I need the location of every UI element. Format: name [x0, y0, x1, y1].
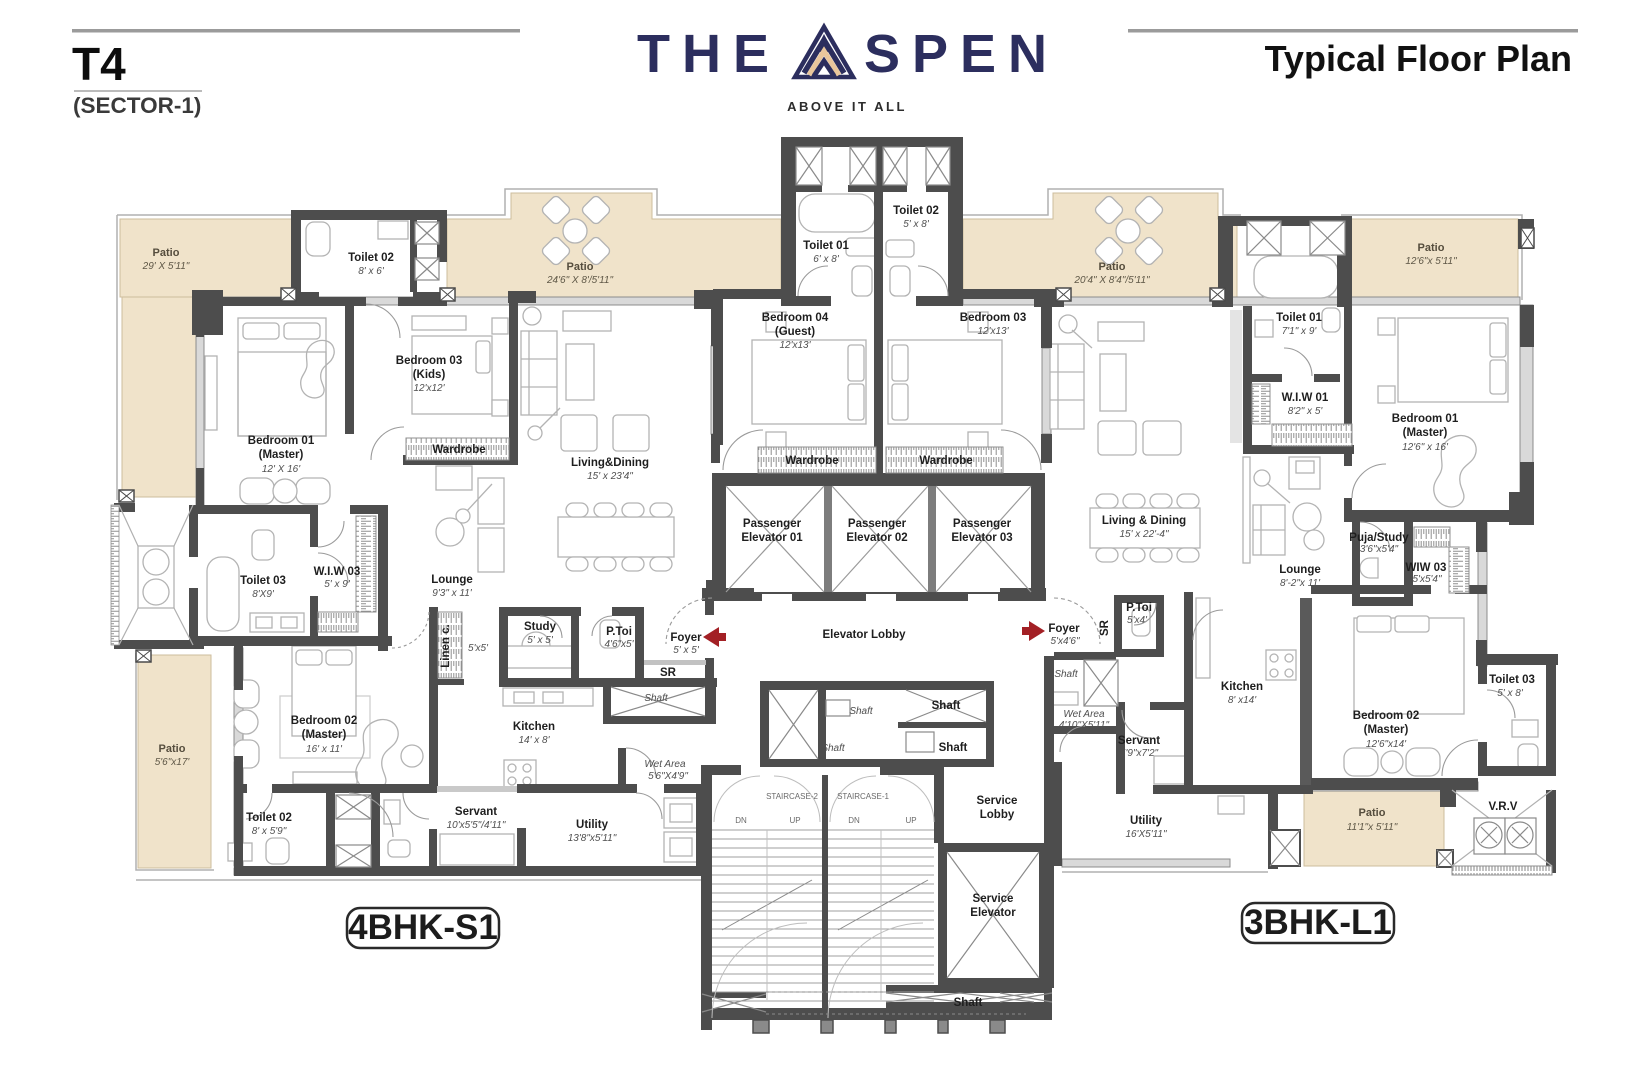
- svg-text:Linen c.: Linen c.: [440, 624, 452, 667]
- svg-text:Wardrobe: Wardrobe: [919, 455, 972, 467]
- svg-text:Shaft: Shaft: [821, 743, 846, 754]
- svg-text:4'10"X5'11": 4'10"X5'11": [1059, 720, 1110, 731]
- svg-text:SR: SR: [1099, 619, 1111, 636]
- svg-text:Toilet 03: Toilet 03: [240, 575, 286, 587]
- svg-text:Wet Area: Wet Area: [644, 759, 686, 770]
- svg-text:12'6"x14': 12'6"x14': [1366, 739, 1407, 750]
- svg-text:9'3" x 11': 9'3" x 11': [432, 588, 473, 599]
- svg-text:Shaft: Shaft: [849, 706, 874, 717]
- svg-text:(Master): (Master): [302, 729, 347, 741]
- svg-text:Patio: Patio: [1099, 261, 1126, 273]
- svg-text:Servant: Servant: [1118, 735, 1160, 747]
- svg-text:10'x5'5"/4'11": 10'x5'5"/4'11": [447, 820, 506, 831]
- svg-text:Foyer: Foyer: [670, 632, 702, 644]
- svg-text:12'x13': 12'x13': [779, 340, 811, 351]
- svg-text:WIW 03: WIW 03: [1406, 562, 1447, 574]
- svg-text:5'x4': 5'x4': [1127, 615, 1148, 626]
- svg-text:15' x 23'4": 15' x 23'4": [587, 471, 633, 482]
- svg-text:Living & Dining: Living & Dining: [1102, 515, 1186, 527]
- svg-text:8' x 5'9": 8' x 5'9": [252, 826, 287, 837]
- svg-text:5' x 5': 5' x 5': [673, 645, 700, 656]
- svg-text:UP: UP: [905, 816, 916, 825]
- svg-text:14' x 8': 14' x 8': [518, 735, 550, 746]
- svg-text:24'6" X 8'/5'11": 24'6" X 8'/5'11": [546, 275, 613, 286]
- svg-text:(Master): (Master): [1364, 724, 1409, 736]
- svg-text:Typical Floor Plan: Typical Floor Plan: [1265, 38, 1572, 79]
- svg-text:Passenger: Passenger: [848, 518, 907, 530]
- svg-text:12'x12': 12'x12': [413, 383, 445, 394]
- svg-text:SPEN: SPEN: [864, 24, 1059, 84]
- svg-text:Servant: Servant: [455, 806, 497, 818]
- svg-text:Elevator Lobby: Elevator Lobby: [822, 629, 906, 641]
- svg-text:Bedroom 03: Bedroom 03: [396, 355, 462, 367]
- svg-text:5'x5': 5'x5': [468, 643, 489, 654]
- svg-text:Toilet 02: Toilet 02: [246, 812, 292, 824]
- svg-text:Living&Dining: Living&Dining: [571, 457, 649, 469]
- svg-text:5' x 5': 5' x 5': [527, 635, 554, 646]
- svg-text:V.R.V: V.R.V: [1489, 801, 1518, 813]
- svg-text:12' X 16': 12' X 16': [262, 464, 301, 475]
- svg-text:(Master): (Master): [1403, 427, 1448, 439]
- svg-text:Patio: Patio: [153, 247, 180, 259]
- svg-text:5' x 8': 5' x 8': [1497, 688, 1524, 699]
- svg-text:Wet Area: Wet Area: [1063, 709, 1105, 720]
- svg-text:Shaft: Shaft: [644, 693, 669, 704]
- svg-text:Patio: Patio: [159, 743, 186, 755]
- svg-text:Toilet 01: Toilet 01: [803, 240, 849, 252]
- svg-text:12'6" x 16': 12'6" x 16': [1402, 442, 1449, 453]
- svg-text:29' X 5'11": 29' X 5'11": [142, 261, 190, 272]
- svg-text:16' x 11': 16' x 11': [306, 744, 343, 755]
- svg-text:12'x13': 12'x13': [977, 326, 1009, 337]
- svg-text:5' x 9': 5' x 9': [324, 579, 351, 590]
- svg-text:Passenger: Passenger: [743, 518, 802, 530]
- svg-text:Wardrobe: Wardrobe: [785, 455, 838, 467]
- svg-text:Patio: Patio: [567, 261, 594, 273]
- svg-text:Bedroom 01: Bedroom 01: [1392, 413, 1459, 425]
- svg-text:Study: Study: [524, 621, 557, 633]
- svg-text:Puja/Study: Puja/Study: [1349, 532, 1409, 544]
- svg-text:5' x 8': 5' x 8': [903, 219, 930, 230]
- svg-text:Service: Service: [973, 893, 1014, 905]
- svg-text:13'8"x5'11": 13'8"x5'11": [568, 833, 617, 844]
- svg-text:5'6"x17': 5'6"x17': [155, 757, 191, 768]
- svg-text:Utility: Utility: [1130, 815, 1163, 827]
- svg-text:(Guest): (Guest): [775, 326, 815, 338]
- svg-text:T4: T4: [72, 38, 126, 90]
- svg-text:20'4" X 8'4"/5'11": 20'4" X 8'4"/5'11": [1073, 275, 1150, 286]
- svg-text:W.I.W 03: W.I.W 03: [314, 566, 361, 578]
- svg-text:11'1"x 5'11": 11'1"x 5'11": [1347, 822, 1398, 833]
- svg-text:3BHK-L1: 3BHK-L1: [1244, 903, 1392, 942]
- svg-text:Elevator 02: Elevator 02: [846, 532, 907, 544]
- svg-text:DN: DN: [735, 816, 747, 825]
- svg-text:4BHK-S1: 4BHK-S1: [348, 908, 498, 947]
- svg-text:5'6"X4'9": 5'6"X4'9": [648, 771, 688, 782]
- svg-text:Lounge: Lounge: [1279, 564, 1321, 576]
- svg-text:Shaft: Shaft: [939, 742, 968, 754]
- svg-text:Lobby: Lobby: [980, 809, 1015, 821]
- svg-text:Bedroom 01: Bedroom 01: [248, 435, 315, 447]
- svg-text:(Master): (Master): [259, 449, 304, 461]
- svg-text:Shaft: Shaft: [1054, 669, 1079, 680]
- svg-text:Toilet 03: Toilet 03: [1489, 674, 1535, 686]
- svg-text:SR: SR: [660, 667, 677, 679]
- svg-text:Bedroom 04: Bedroom 04: [762, 312, 829, 324]
- svg-text:Elevator: Elevator: [970, 907, 1016, 919]
- svg-text:Patio: Patio: [1418, 242, 1445, 254]
- svg-text:7'1" x 9': 7'1" x 9': [1282, 326, 1318, 337]
- svg-text:15' x 22'-4": 15' x 22'-4": [1119, 529, 1169, 540]
- svg-text:8'2" x 5': 8'2" x 5': [1288, 406, 1324, 417]
- svg-text:Shaft: Shaft: [954, 997, 983, 1009]
- svg-text:UP: UP: [789, 816, 800, 825]
- svg-text:16'X5'11": 16'X5'11": [1125, 829, 1167, 840]
- svg-text:Utility: Utility: [576, 819, 609, 831]
- svg-text:Toilet 01: Toilet 01: [1276, 312, 1322, 324]
- svg-text:Toilet 02: Toilet 02: [348, 252, 394, 264]
- svg-text:STAIRCASE-2: STAIRCASE-2: [766, 792, 818, 801]
- svg-text:Kitchen: Kitchen: [513, 721, 555, 733]
- svg-text:Lounge: Lounge: [431, 574, 473, 586]
- svg-text:8' x 6': 8' x 6': [358, 266, 385, 277]
- svg-text:W.I.W 01: W.I.W 01: [1282, 392, 1329, 404]
- svg-text:THE: THE: [637, 24, 781, 84]
- svg-text:6' x 8': 6' x 8': [813, 254, 840, 265]
- svg-text:Bedroom 02: Bedroom 02: [1353, 710, 1419, 722]
- svg-text:Wardrobe: Wardrobe: [432, 444, 485, 456]
- svg-text:12'6"x 5'11": 12'6"x 5'11": [1405, 256, 1457, 267]
- svg-text:8'-2"x 11': 8'-2"x 11': [1280, 578, 1321, 589]
- svg-text:(Kids): (Kids): [413, 369, 446, 381]
- svg-text:Bedroom 03: Bedroom 03: [960, 312, 1026, 324]
- svg-text:STAIRCASE-1: STAIRCASE-1: [837, 792, 889, 801]
- svg-text:5'9"x7'2": 5'9"x7'2": [1120, 748, 1159, 759]
- svg-text:Bedroom 02: Bedroom 02: [291, 715, 357, 727]
- svg-text:P.Toi: P.Toi: [1126, 602, 1152, 614]
- svg-text:8'X9': 8'X9': [252, 589, 275, 600]
- svg-text:Service: Service: [977, 795, 1018, 807]
- svg-text:5'x5'4": 5'x5'4": [1412, 574, 1442, 585]
- svg-text:P.Toi: P.Toi: [606, 626, 632, 638]
- svg-text:Toilet 02: Toilet 02: [893, 205, 939, 217]
- svg-text:Shaft: Shaft: [932, 700, 961, 712]
- svg-text:ABOVE IT ALL: ABOVE IT ALL: [787, 99, 907, 114]
- svg-text:5'x4'6": 5'x4'6": [1050, 636, 1080, 647]
- svg-text:DN: DN: [848, 816, 860, 825]
- svg-text:Foyer: Foyer: [1048, 623, 1080, 635]
- svg-text:Passenger: Passenger: [953, 518, 1012, 530]
- svg-text:4'6"x5': 4'6"x5': [604, 639, 634, 650]
- svg-text:8' x14': 8' x14': [1228, 695, 1257, 706]
- svg-text:3'6"x5'4": 3'6"x5'4": [1360, 544, 1399, 555]
- svg-text:Elevator 01: Elevator 01: [741, 532, 803, 544]
- svg-text:Elevator 03: Elevator 03: [951, 532, 1012, 544]
- svg-text:Kitchen: Kitchen: [1221, 681, 1263, 693]
- svg-text:(SECTOR-1): (SECTOR-1): [73, 93, 201, 118]
- svg-text:Patio: Patio: [1359, 807, 1386, 819]
